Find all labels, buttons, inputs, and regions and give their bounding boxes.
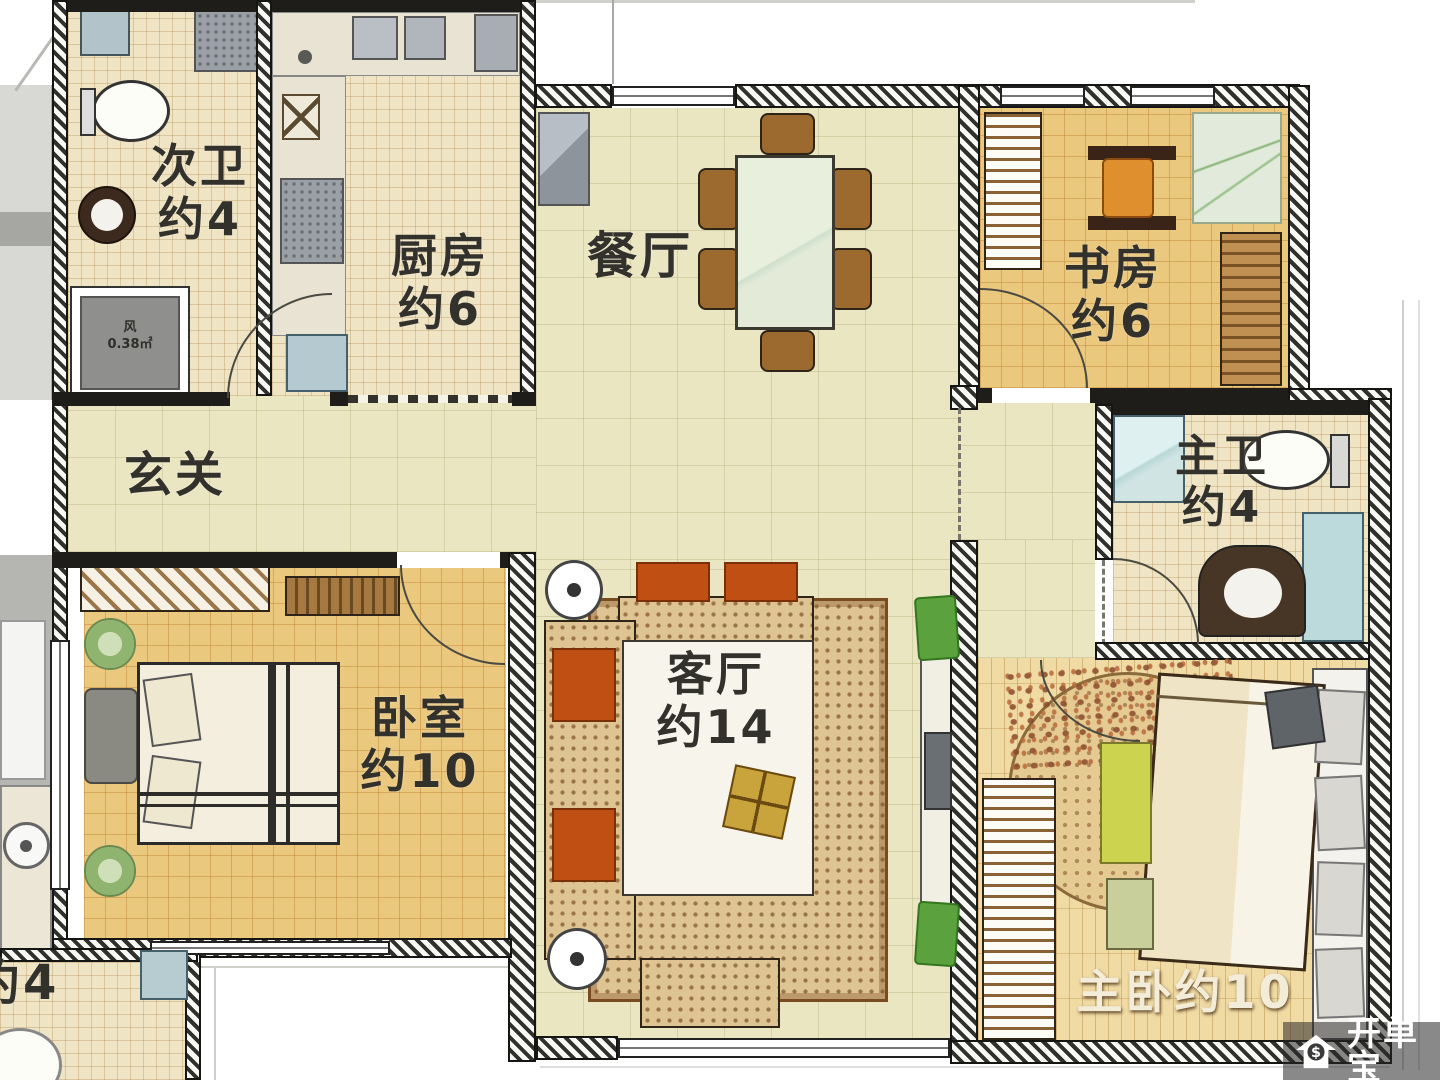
exterior-left-box: [0, 620, 46, 780]
master-left-cabinet: [982, 778, 1056, 1040]
bath2-area: 约4: [158, 192, 242, 246]
kitchen-sink: [352, 16, 398, 60]
tv-screen: [924, 732, 952, 810]
study-window-2: [1130, 86, 1215, 106]
exterior-bottom-line2: [214, 968, 216, 1080]
kitchen-label: 厨房 约6: [350, 230, 530, 336]
kitchen-appliance: [474, 14, 518, 72]
exterior-right-line2: [1418, 300, 1420, 1070]
living-stool: [640, 958, 780, 1028]
bedroom-window: [50, 640, 70, 890]
wall-kitchen-dining: [520, 0, 536, 400]
wall-living-corridor-stub: [950, 385, 978, 410]
exterior-bottom-line1: [188, 966, 532, 968]
kitchen-faucet: [298, 50, 312, 64]
bedroom-label: 卧室 约10: [330, 692, 510, 798]
bedroom-blanket-line: [139, 804, 337, 807]
wall-study-right-outer: [1288, 85, 1310, 400]
bath2-name: 次卫: [151, 139, 249, 193]
balcony-edge-line: [612, 0, 614, 84]
bedroom-blanket-line: [139, 792, 337, 796]
partial-room-label: 约4: [0, 956, 112, 1011]
master-bath-toilet-tank: [1330, 434, 1350, 488]
exterior-bottom-line3: [540, 1066, 1390, 1068]
kitchen-hatch-box: [282, 94, 320, 140]
living-area: 约14: [656, 700, 775, 754]
study-name: 书房: [1064, 241, 1162, 295]
coffee-table-tray: [722, 764, 796, 839]
bedroom-plant: [84, 618, 136, 670]
living-window: [618, 1038, 950, 1058]
corridor-floor-lower: [978, 540, 1095, 658]
bath2-cabinet: [80, 10, 130, 56]
bedroom-cabinet-grille: [285, 576, 400, 616]
wall-living-bottom-left: [536, 1036, 618, 1060]
bath2-shower: [194, 10, 258, 72]
watermark: $ 开单宝: [1283, 1022, 1440, 1080]
master-bedroom-name: 主卧约10: [1076, 965, 1293, 1019]
wall-dining-top-left: [535, 84, 612, 108]
study-window-1: [1000, 86, 1085, 106]
exterior-right-line1: [1402, 300, 1404, 1070]
wall-bedroom-top: [52, 552, 397, 568]
svg-text:$: $: [1311, 1045, 1321, 1061]
kitchen-name: 厨房: [391, 229, 489, 283]
wall-bath2-bottom: [52, 392, 230, 406]
sofa-back-cushion: [636, 562, 710, 602]
master-bath-name: 主卫: [1175, 431, 1269, 482]
master-bedroom-label: 主卧约10: [1055, 966, 1315, 1019]
master-nightstand-lamp: [1100, 742, 1152, 864]
foyer-label: 玄关: [85, 448, 265, 503]
dining-chair: [760, 113, 815, 155]
washing-machine-dot: [20, 840, 32, 852]
wall-dining-top-right: [735, 84, 965, 108]
wall-study-left: [958, 85, 980, 400]
wall-bath2-kitchen-bottom: [330, 392, 348, 406]
tv-plant: [914, 901, 960, 968]
kitchen-area: 约6: [398, 282, 482, 336]
corridor-floor: [958, 403, 1095, 540]
floorplan-canvas: 风 0.38㎡: [0, 0, 1440, 1080]
wall-bedroom-living: [508, 552, 536, 1062]
study-desk-bottom: [1088, 216, 1176, 230]
dining-name: 餐厅: [587, 227, 693, 285]
dining-chair: [830, 248, 872, 310]
master-wardrobe-block: [1315, 947, 1365, 1019]
living-label: 客厅 约14: [626, 648, 806, 754]
dining-table: [735, 155, 835, 330]
exterior-top-line: [535, 0, 1195, 3]
wall-master-bath-bottom: [1095, 642, 1392, 660]
master-bath-area: 约4: [1182, 482, 1263, 533]
sofa-back-cushion: [724, 562, 798, 602]
dining-chair: [830, 168, 872, 230]
living-name: 客厅: [667, 647, 765, 701]
master-dark-chair: [1264, 685, 1326, 750]
bedroom-blanket-stripe: [286, 664, 290, 842]
wall-kitchen-bottom-stub: [512, 392, 536, 406]
partial-blue-box: [140, 950, 188, 1000]
master-bath-sink-basin: [1224, 568, 1282, 618]
study-area: 约6: [1071, 294, 1155, 348]
bedroom-wardrobe: [80, 566, 270, 612]
bath2-label: 次卫 约4: [110, 140, 290, 246]
master-wardrobe-block: [1314, 775, 1366, 851]
bedroom-pillow: [143, 673, 202, 747]
bedroom-area: 约10: [360, 744, 479, 798]
tv-plant: [914, 595, 960, 662]
exterior-left-stub: [0, 212, 52, 246]
floor-lamp-dot: [567, 583, 581, 597]
bath2-toilet: [92, 80, 170, 142]
floor-lamp-dot: [570, 952, 584, 966]
vent-shaft-label: 风: [123, 320, 136, 335]
corridor-opening-dash: [958, 408, 961, 540]
master-nightstand-box: [1106, 878, 1154, 950]
vent-shaft-box: 风 0.38㎡: [80, 296, 180, 390]
sofa-left-cushion: [552, 648, 616, 722]
bedroom-plant: [84, 845, 136, 897]
partial-room-name: 约4: [0, 955, 59, 1011]
study-chair: [1102, 158, 1154, 218]
house-dollar-icon: $: [1293, 1032, 1339, 1070]
master-bath-label: 主卫 约4: [1132, 432, 1312, 533]
dining-chair: [698, 168, 740, 230]
dining-window: [612, 86, 735, 106]
vent-shaft-area: 0.38㎡: [107, 337, 152, 352]
foyer-name: 玄关: [124, 447, 226, 503]
watermark-brand: 开单宝: [1347, 1017, 1430, 1080]
kitchen-sliding-opening: [348, 395, 512, 403]
study-shelf: [1220, 232, 1282, 386]
sofa-left-cushion: [552, 808, 616, 882]
master-bath-door-opening: [1102, 560, 1105, 645]
bedroom-name: 卧室: [371, 691, 469, 745]
wall-top: [52, 0, 536, 12]
wall-master-bath-top: [1095, 400, 1392, 415]
study-label: 书房 约6: [1023, 242, 1203, 348]
study-plant: [1192, 112, 1282, 224]
dining-chair: [760, 330, 815, 372]
bedroom-blanket-stripe: [268, 664, 276, 842]
wall-right-outer-lower: [1368, 398, 1392, 1062]
master-wardrobe-block: [1315, 861, 1366, 937]
dining-label: 餐厅: [550, 228, 730, 286]
dining-wall-panel: [538, 112, 590, 206]
kitchen-sink-2: [404, 16, 446, 60]
bedroom-armchair: [84, 688, 138, 784]
wall-master-bath-left: [1095, 404, 1113, 560]
bath2-toilet-tank: [80, 88, 96, 136]
